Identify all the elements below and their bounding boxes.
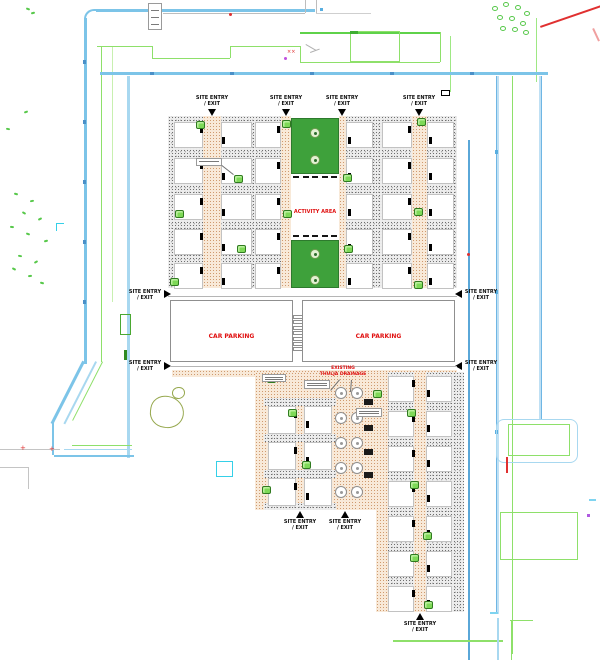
door-mark xyxy=(427,425,430,432)
site-entry-arrow xyxy=(296,511,304,518)
plot xyxy=(304,406,332,434)
boundary-tick xyxy=(390,72,394,75)
boundary-dash xyxy=(322,176,328,178)
walkway-tree-icon xyxy=(335,462,347,474)
neighbor-parcel-green xyxy=(500,512,578,560)
plot xyxy=(427,194,454,220)
site-entry-label-line2: / EXIT xyxy=(328,525,362,531)
road-line-blue xyxy=(541,76,542,420)
boundary-dash xyxy=(312,235,318,237)
plot xyxy=(268,442,296,470)
activity-tree-icon xyxy=(310,128,320,138)
shrub-icon xyxy=(234,175,243,183)
shrub-icon xyxy=(302,461,311,469)
door-mark xyxy=(412,520,415,527)
vegetation-icon xyxy=(523,30,529,35)
door-mark xyxy=(200,267,203,274)
equipment-label xyxy=(196,158,222,166)
drainage-cover xyxy=(364,399,373,405)
pedestrian-path xyxy=(414,372,426,612)
door-mark xyxy=(277,126,280,133)
parking-walkway-rung xyxy=(293,337,303,341)
survey-line-red xyxy=(540,5,600,27)
shrub-icon xyxy=(175,210,184,218)
door-mark xyxy=(222,278,225,285)
neighbor-outline xyxy=(511,620,512,660)
boundary-tick xyxy=(83,120,86,124)
tree-icon xyxy=(148,394,186,430)
plot xyxy=(427,229,454,255)
parking-walkway-rung xyxy=(293,320,303,324)
vegetation-icon xyxy=(31,12,35,15)
shrub-icon xyxy=(407,409,416,417)
boundary-tick xyxy=(470,72,474,75)
pedestrian-path xyxy=(281,116,291,288)
neighbor-sketch xyxy=(316,13,371,14)
site-entry-arrow xyxy=(455,290,462,298)
road-bracket-green xyxy=(120,314,131,335)
shrub-icon xyxy=(196,121,205,129)
door-mark xyxy=(306,493,309,500)
neighbor-outline xyxy=(300,62,440,63)
site-boundary-line xyxy=(54,455,134,457)
site-entry-label-line2: / EXIT xyxy=(283,525,317,531)
shrub-icon xyxy=(373,390,382,398)
door-mark xyxy=(222,244,225,251)
door-mark xyxy=(200,233,203,240)
door-mark xyxy=(427,495,430,502)
plot xyxy=(388,376,414,402)
site-entry-label: SITE ENTRY/ EXIT xyxy=(128,289,162,301)
survey-rect-black xyxy=(441,90,450,96)
door-mark xyxy=(429,173,432,180)
site-entry-label: SITE ENTRY/ EXIT xyxy=(328,519,362,531)
shrub-icon xyxy=(410,554,419,562)
car-parking-right-label: CAR PARKING xyxy=(337,333,420,340)
note-box xyxy=(262,374,286,382)
survey-plus-red: + xyxy=(49,445,55,453)
vegetation-icon xyxy=(18,255,22,258)
site-entry-arrow xyxy=(208,109,216,116)
shrub-icon xyxy=(262,486,271,494)
vegetation-icon xyxy=(512,27,518,32)
site-entry-label: SITE ENTRY/ EXIT xyxy=(194,95,230,107)
walkway-tree-icon xyxy=(351,387,363,399)
activity-tree-icon xyxy=(310,249,320,259)
neighbor-outline xyxy=(350,31,358,34)
site-entry-label: SITE ENTRY/ EXIT xyxy=(128,360,162,372)
door-mark xyxy=(429,244,432,251)
road-line-blue xyxy=(64,449,132,450)
vegetation-icon xyxy=(14,193,18,196)
shrub-icon xyxy=(282,120,291,128)
site-entry-label: SITE ENTRY/ EXIT xyxy=(464,289,498,301)
walkway-tree-icon xyxy=(351,437,363,449)
note-box xyxy=(304,380,330,389)
plot xyxy=(427,158,454,184)
door-mark xyxy=(427,565,430,572)
vegetation-icon xyxy=(28,275,32,277)
site-entry-arrow xyxy=(164,290,171,298)
walkway-tree-icon xyxy=(351,486,363,498)
neighbor-outline xyxy=(450,36,451,92)
boundary-dash xyxy=(303,235,309,237)
plot xyxy=(346,122,373,148)
site-boundary-line xyxy=(100,72,548,75)
walkway-tree-icon xyxy=(335,486,347,498)
site-entry-label-line2: / EXIT xyxy=(464,366,498,372)
road-edge xyxy=(168,296,457,297)
shrub-icon xyxy=(414,281,423,289)
door-mark xyxy=(427,390,430,397)
plot xyxy=(426,481,452,507)
note-box xyxy=(356,408,382,417)
activity-tree-icon xyxy=(310,155,320,165)
road-line-blue xyxy=(497,618,499,660)
site-entry-arrow xyxy=(341,511,349,518)
road-tick xyxy=(490,612,498,614)
neighbor-sketch xyxy=(163,13,305,14)
parking-walkway-rung xyxy=(293,347,303,351)
shrub-icon xyxy=(414,208,423,216)
vegetation-icon xyxy=(515,5,521,10)
site-entry-label-line2: / EXIT xyxy=(401,101,437,107)
site-entry-label: SITE ENTRY/ EXIT xyxy=(401,95,437,107)
vegetation-icon xyxy=(492,6,498,11)
survey-line-gray xyxy=(0,467,28,468)
neighbor-outline xyxy=(230,46,231,58)
plot xyxy=(304,478,332,506)
site-entry-label-line2: / EXIT xyxy=(464,295,498,301)
plot xyxy=(221,263,252,289)
drainage-cover xyxy=(364,449,373,455)
plot xyxy=(174,229,203,255)
door-mark xyxy=(408,162,411,169)
vegetation-icon xyxy=(34,260,38,264)
door-mark xyxy=(294,483,297,490)
drainage-note-line2: THULJA DRAINAGE xyxy=(306,372,380,378)
vegetation-icon xyxy=(22,211,26,215)
vegetation-icon xyxy=(40,282,44,285)
road-line-blue xyxy=(468,140,470,660)
site-entry-label: SITE ENTRY/ EXIT xyxy=(324,95,360,107)
site-entry-label-line2: / EXIT xyxy=(403,627,437,633)
road-tick xyxy=(495,150,498,154)
road-line-blue xyxy=(496,76,497,614)
boundary-dash xyxy=(322,235,328,237)
legend-box xyxy=(148,3,162,30)
plot xyxy=(346,263,373,289)
door-mark xyxy=(306,421,309,428)
vegetation-icon xyxy=(44,240,48,243)
survey-line-red xyxy=(506,457,508,473)
plot xyxy=(427,122,454,148)
drainage-cover xyxy=(364,472,373,478)
shrub-icon xyxy=(344,245,353,253)
shrub-icon xyxy=(343,174,352,182)
site-entry-label: SITE ENTRY/ EXIT xyxy=(403,621,437,633)
door-mark xyxy=(412,590,415,597)
door-mark xyxy=(277,233,280,240)
neighbor-sketch xyxy=(305,0,306,13)
road-line-blue xyxy=(127,76,130,458)
neighbor-outline xyxy=(152,58,230,59)
plot xyxy=(426,411,452,437)
neighbor-sketch xyxy=(316,0,317,13)
plot xyxy=(426,446,452,472)
door-mark xyxy=(348,278,351,285)
survey-mark-red: ×× xyxy=(287,49,301,55)
pedestrian-path xyxy=(339,116,346,288)
door-mark xyxy=(200,198,203,205)
door-mark xyxy=(222,137,225,144)
vegetation-icon xyxy=(503,2,509,7)
boundary-tick xyxy=(83,60,86,64)
plot xyxy=(388,586,414,612)
door-mark xyxy=(429,137,432,144)
vegetation-icon xyxy=(500,26,506,31)
survey-dot-red xyxy=(229,13,232,16)
door-mark xyxy=(222,209,225,216)
vegetation-icon xyxy=(38,217,42,221)
door-mark xyxy=(277,198,280,205)
boundary-dash xyxy=(293,235,299,237)
door-mark xyxy=(429,278,432,285)
vegetation-icon xyxy=(524,11,530,16)
parking-walkway-rung xyxy=(293,326,303,330)
gravel-band xyxy=(264,398,336,406)
vegetation-icon xyxy=(30,200,34,203)
neighbor-outline xyxy=(393,640,503,642)
shrub-icon xyxy=(423,532,432,540)
vegetation-icon xyxy=(26,7,30,10)
shrub-icon xyxy=(410,481,419,489)
plot xyxy=(426,551,452,577)
boundary-tick xyxy=(150,72,154,75)
site-entry-label-line2: / EXIT xyxy=(128,295,162,301)
parking-walkway-rung xyxy=(293,331,303,335)
survey-line-gray xyxy=(28,467,29,489)
door-mark xyxy=(412,450,415,457)
site-plan: ××++ACTIVITY AREASITE ENTRY/ EXITSITE EN… xyxy=(0,0,600,660)
door-mark xyxy=(348,137,351,144)
car-parking-right xyxy=(302,300,455,362)
site-entry-arrow xyxy=(282,109,290,116)
parking-walkway-rung xyxy=(293,315,303,319)
site-boundary-line xyxy=(96,9,315,12)
boundary-dash xyxy=(331,235,337,237)
site-entry-arrow xyxy=(416,613,424,620)
shrub-icon xyxy=(417,118,426,126)
neighbor-parcel-green xyxy=(508,424,570,456)
drainage-note: EXISTINGTHULJA DRAINAGE xyxy=(306,366,380,377)
shrub-icon xyxy=(170,278,179,286)
site-entry-label-line2: / EXIT xyxy=(194,101,230,107)
survey-dot-blue xyxy=(320,8,323,11)
plot xyxy=(388,446,414,472)
plot xyxy=(346,194,373,220)
vegetation-icon xyxy=(520,21,526,26)
door-mark xyxy=(429,209,432,216)
boundary-dash xyxy=(303,176,309,178)
neighbor-outline xyxy=(230,46,300,47)
road-tick xyxy=(589,499,596,501)
plot xyxy=(388,516,414,542)
boundary-dash xyxy=(331,176,337,178)
door-mark xyxy=(408,267,411,274)
site-entry-label: SITE ENTRY/ EXIT xyxy=(268,95,304,107)
tree-icon xyxy=(172,387,185,399)
survey-square-cyan xyxy=(216,461,233,477)
boundary-tick xyxy=(230,72,234,75)
boundary-tick xyxy=(310,72,314,75)
survey-dot-purple xyxy=(284,57,287,60)
plot xyxy=(426,376,452,402)
neighbor-outline xyxy=(350,31,400,62)
neighbor-outline xyxy=(101,46,102,362)
boundary-tick xyxy=(83,180,86,184)
neighbor-outline xyxy=(512,76,513,654)
pedestrian-path xyxy=(203,116,221,288)
car-parking-left xyxy=(170,300,293,362)
survey-plus-red: + xyxy=(20,444,26,452)
site-entry-label-line2: / EXIT xyxy=(128,366,162,372)
parking-walkway-rung xyxy=(293,342,303,346)
door-mark xyxy=(427,460,430,467)
neighbor-outline xyxy=(112,46,113,302)
door-mark xyxy=(348,209,351,216)
door-mark xyxy=(222,173,225,180)
door-mark xyxy=(294,447,297,454)
vegetation-icon xyxy=(6,128,10,131)
walkway-tree-icon xyxy=(335,437,347,449)
boundary-tick xyxy=(83,240,86,244)
plot xyxy=(221,122,252,148)
boundary-tick xyxy=(83,300,86,304)
gravel-band xyxy=(264,434,336,442)
door-mark xyxy=(277,267,280,274)
site-entry-label: SITE ENTRY/ EXIT xyxy=(464,360,498,372)
site-entry-label-line2: / EXIT xyxy=(268,101,304,107)
plot xyxy=(427,263,454,289)
plot xyxy=(268,478,296,506)
shrub-icon xyxy=(237,245,246,253)
site-entry-label-line2: / EXIT xyxy=(324,101,360,107)
door-mark xyxy=(408,126,411,133)
vegetation-icon xyxy=(12,267,16,271)
site-entry-arrow xyxy=(338,109,346,116)
neighbor-outline xyxy=(440,32,441,62)
survey-dot-purple xyxy=(587,514,590,517)
activity-area-label: ACTIVITY AREA xyxy=(288,209,342,215)
boundary-dash xyxy=(312,176,318,178)
activity-lawn xyxy=(291,118,339,174)
survey-square-cyan xyxy=(56,223,64,231)
door-mark xyxy=(277,162,280,169)
shrub-icon xyxy=(424,601,433,609)
vegetation-icon xyxy=(509,16,515,21)
road-mark-green xyxy=(124,350,127,360)
survey-dot-red xyxy=(467,253,470,256)
neighbor-sketch xyxy=(310,49,320,53)
neighbor-outline xyxy=(510,620,533,621)
neighbor-outline xyxy=(97,46,153,47)
plot xyxy=(221,194,252,220)
door-mark xyxy=(408,198,411,205)
vegetation-icon xyxy=(10,226,14,228)
door-mark xyxy=(412,380,415,387)
walkway-tree-icon xyxy=(351,462,363,474)
site-boundary-line xyxy=(84,18,87,364)
activity-tree-icon xyxy=(310,275,320,285)
gravel-band xyxy=(264,470,336,478)
neighbor-outline xyxy=(152,46,153,58)
walkway-tree-icon xyxy=(335,387,347,399)
door-mark xyxy=(408,233,411,240)
car-parking-left-label: CAR PARKING xyxy=(190,333,273,340)
boundary-dash xyxy=(293,176,299,178)
site-entry-arrow xyxy=(415,109,423,116)
pedestrian-path xyxy=(412,116,427,288)
vegetation-icon xyxy=(24,110,28,113)
site-entry-label: SITE ENTRY/ EXIT xyxy=(283,519,317,531)
walkway-tree-icon xyxy=(335,412,347,424)
neighbor-outline xyxy=(72,445,132,446)
vegetation-icon xyxy=(497,15,503,20)
shrub-icon xyxy=(288,409,297,417)
drainage-cover xyxy=(364,425,373,431)
survey-line-red xyxy=(593,28,600,41)
vegetation-icon xyxy=(26,232,30,235)
